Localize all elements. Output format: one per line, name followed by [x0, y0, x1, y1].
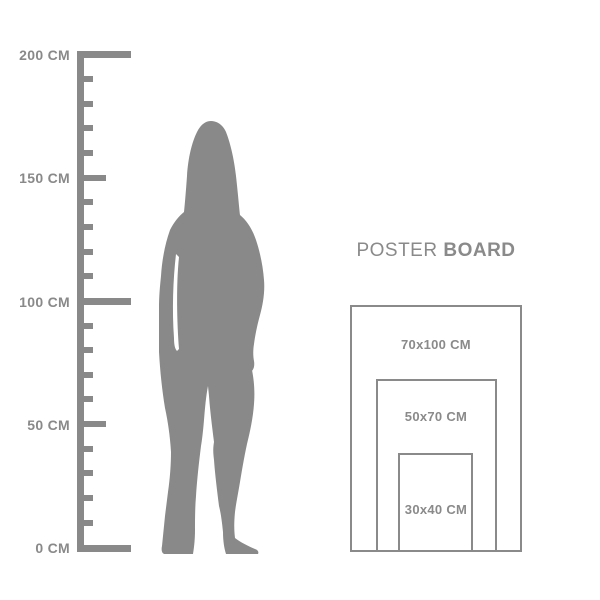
ruler-tick — [77, 446, 93, 452]
ruler-tick — [77, 520, 93, 526]
ruler-tick — [77, 323, 93, 329]
size-guide-diagram: 200 CM 150 CM 100 CM 50 CM 0 CM POSTER B… — [0, 0, 600, 600]
poster-board-title: POSTER BOARD — [336, 240, 536, 262]
poster-size-label-30x40: 30x40 CM — [351, 502, 521, 518]
ruler-tick — [77, 470, 93, 476]
ruler-tick-150 — [77, 175, 106, 181]
ruler-tick-0 — [77, 545, 131, 552]
poster-board-title-regular: POSTER — [356, 240, 437, 261]
ruler-tick — [77, 125, 93, 131]
ruler-tick — [77, 199, 93, 205]
ruler-tick — [77, 76, 93, 82]
ruler-tick — [77, 224, 93, 230]
ruler-label-200cm: 200 CM — [0, 47, 70, 63]
ruler-label-50cm: 50 CM — [0, 417, 70, 433]
poster-board-title-bold: BOARD — [443, 240, 515, 261]
ruler-tick — [77, 495, 93, 501]
ruler-tick — [77, 273, 93, 279]
ruler-label-0cm: 0 CM — [0, 540, 70, 556]
ruler-tick-200 — [77, 51, 131, 58]
ruler-tick — [77, 396, 93, 402]
ruler-tick — [77, 347, 93, 353]
ruler-tick-100 — [77, 298, 131, 305]
ruler-tick-50 — [77, 421, 106, 427]
poster-size-label-70x100: 70x100 CM — [351, 337, 521, 353]
woman-silhouette-icon — [152, 118, 272, 558]
ruler-label-100cm: 100 CM — [0, 294, 70, 310]
ruler-tick — [77, 101, 93, 107]
ruler-tick — [77, 249, 93, 255]
poster-size-label-50x70: 50x70 CM — [351, 409, 521, 425]
ruler-tick — [77, 150, 93, 156]
ruler-tick — [77, 372, 93, 378]
ruler-label-150cm: 150 CM — [0, 170, 70, 186]
